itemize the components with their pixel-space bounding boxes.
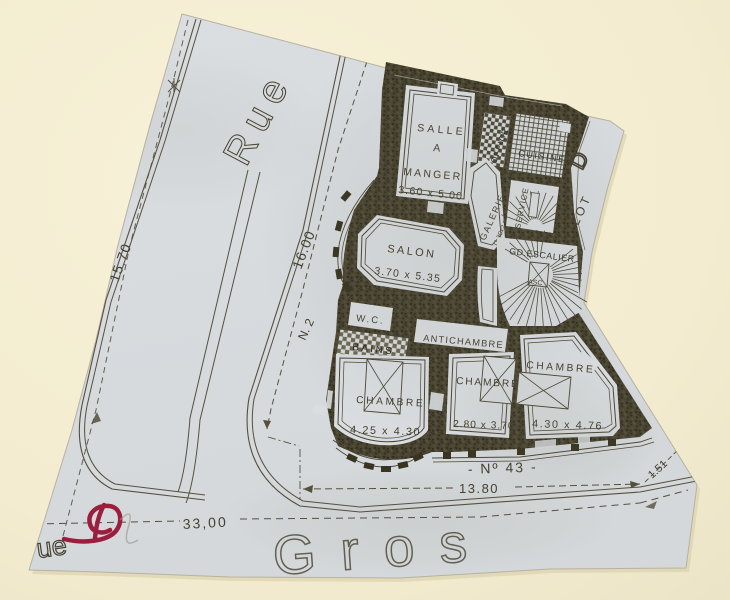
svg-text:ue: ue: [35, 530, 69, 564]
